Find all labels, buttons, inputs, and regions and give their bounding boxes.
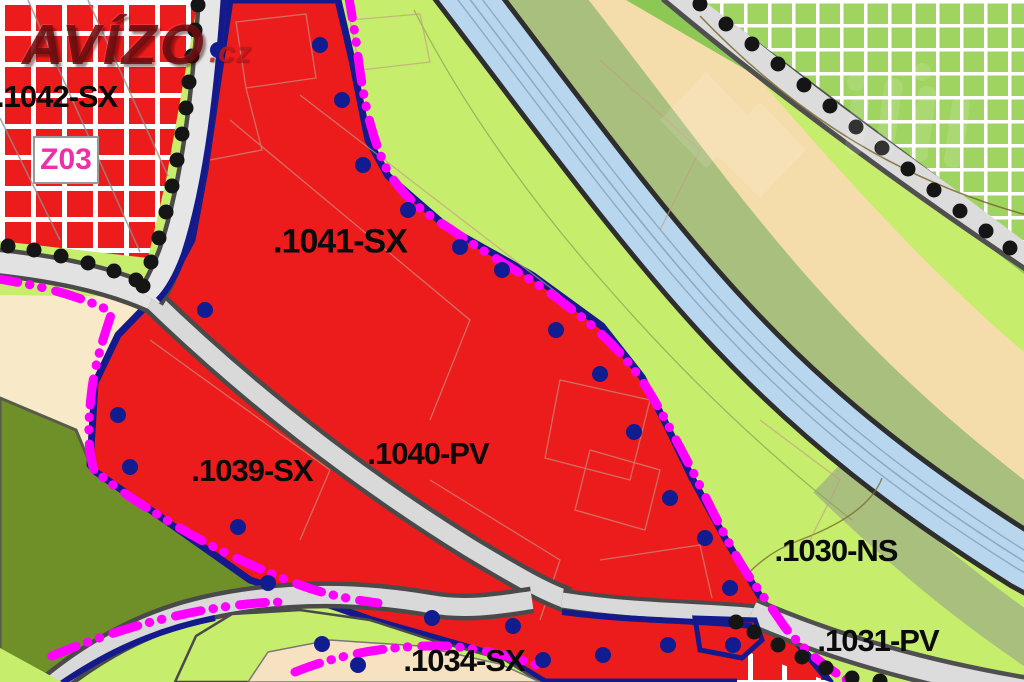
watermark-avizo-suffix: .cz (209, 36, 252, 69)
watermark-avizo-text: AVÍZO (22, 13, 207, 77)
watermark-avizo: AVÍZO.cz (22, 12, 250, 78)
change-code-box: Z03 (33, 136, 99, 184)
map-graphics (0, 0, 1024, 682)
zone-label-1034: .1034-SX (403, 643, 524, 679)
zone-label-1041: .1041-SX (273, 223, 407, 262)
zone-label-1039: .1039-SX (191, 453, 312, 489)
zone-label-1031: .1031-PV (817, 623, 938, 659)
zone-label-1030: .1030-NS (775, 533, 898, 569)
zoning-map-canvas: .1042-SX .1041-SX .1040-PV .1039-SX .103… (0, 0, 1024, 682)
zone-label-1040: .1040-PV (367, 436, 488, 472)
zone-label-1042: .1042-SX (0, 79, 117, 115)
